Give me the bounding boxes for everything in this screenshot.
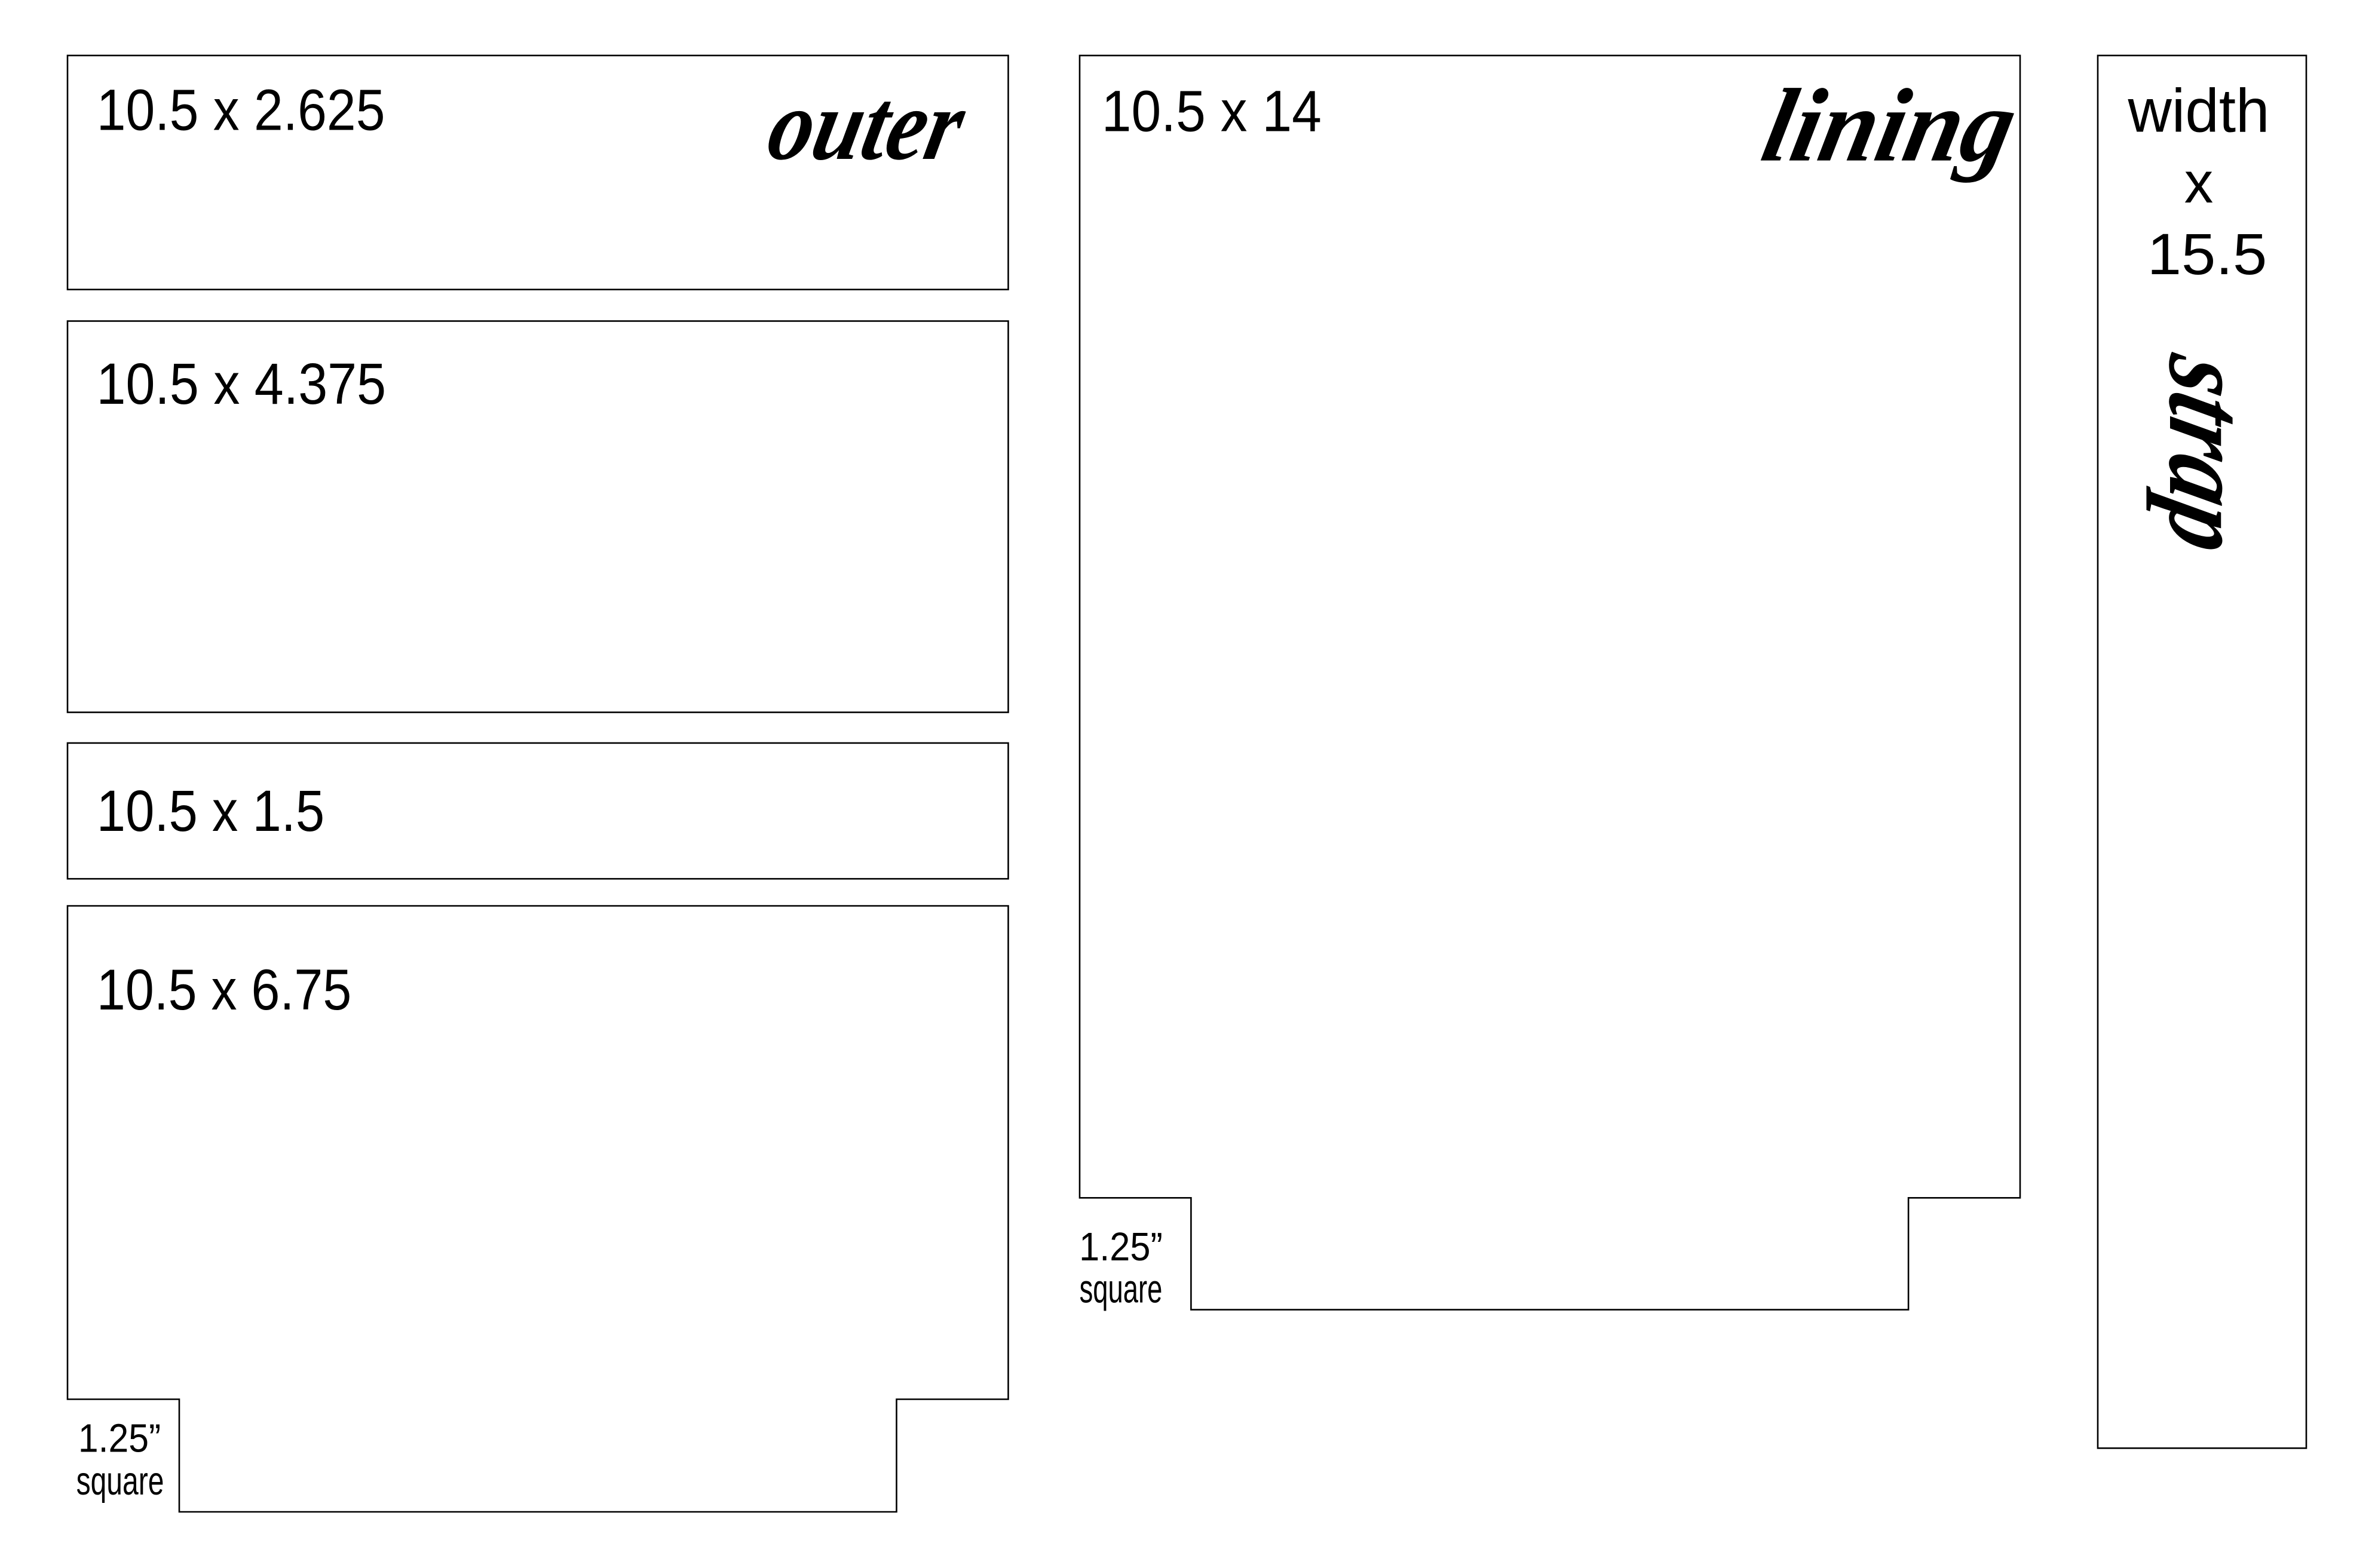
svg-text:outer: outer (759, 68, 975, 181)
svg-text:lining: lining (1754, 67, 2027, 183)
svg-text:square: square (1080, 1267, 1163, 1312)
svg-text:10.5 x 1.5: 10.5 x 1.5 (97, 779, 324, 844)
svg-text:1.25”: 1.25” (78, 1416, 161, 1460)
svg-text:x: x (2184, 150, 2214, 215)
svg-text:15.5: 15.5 (2147, 222, 2267, 287)
svg-text:square: square (76, 1459, 164, 1503)
svg-text:10.5 x 4.375: 10.5 x 4.375 (97, 351, 387, 416)
svg-text:10.5 x 2.625: 10.5 x 2.625 (97, 77, 385, 142)
svg-text:10.5 x 14: 10.5 x 14 (1102, 79, 1322, 143)
svg-text:10.5 x 6.75: 10.5 x 6.75 (97, 958, 351, 1022)
svg-text:strap: strap (2146, 346, 2269, 564)
svg-text:1.25”: 1.25” (1079, 1224, 1163, 1269)
svg-text:width: width (2127, 76, 2269, 145)
